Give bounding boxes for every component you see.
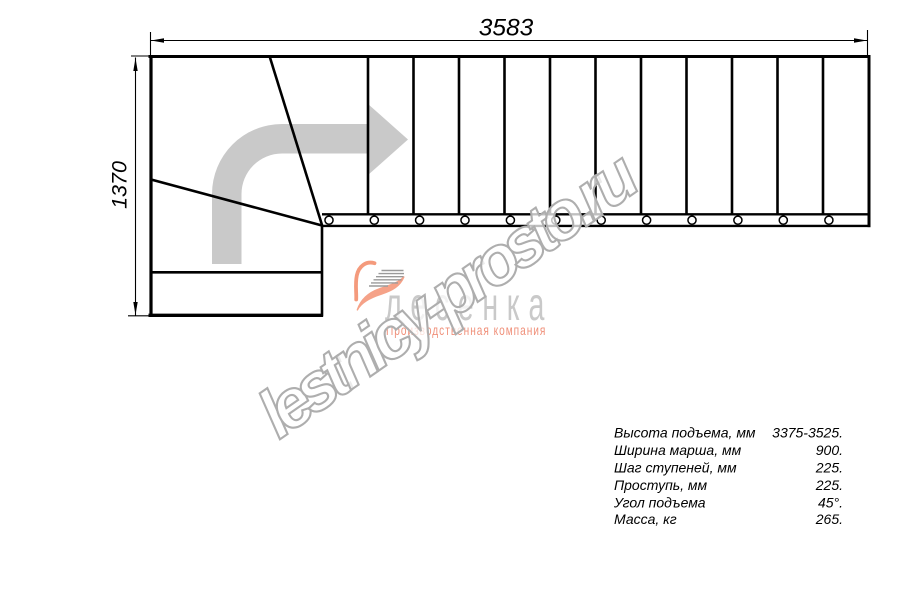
svg-text:Угол подъема: Угол подъема (613, 495, 706, 511)
svg-text:225.: 225. (815, 477, 843, 493)
svg-text:45°.: 45°. (818, 495, 843, 511)
svg-text:225.: 225. (815, 460, 843, 476)
svg-text:Проступь, мм: Проступь, мм (614, 477, 708, 493)
svg-text:Ширина марша, мм: Ширина марша, мм (614, 442, 742, 458)
svg-text:Высота подъема, мм: Высота подъема, мм (614, 425, 756, 441)
svg-text:1370: 1370 (108, 161, 132, 209)
svg-text:Масса, кг: Масса, кг (614, 511, 677, 527)
svg-text:3583: 3583 (479, 15, 534, 42)
svg-text:900.: 900. (816, 442, 843, 458)
svg-text:3375-3525.: 3375-3525. (772, 425, 843, 441)
svg-text:265.: 265. (815, 511, 843, 527)
svg-text:Шаг ступеней, мм: Шаг ступеней, мм (614, 460, 737, 476)
